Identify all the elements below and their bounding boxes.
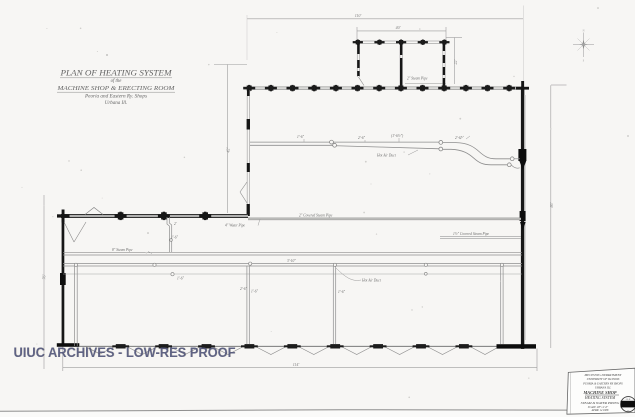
svg-text:APRIL 14 1908: APRIL 14 1908	[591, 409, 609, 412]
svg-text:1'-6″: 1'-6″	[177, 277, 185, 281]
svg-text:Urbana Ill.: Urbana Ill.	[105, 101, 128, 106]
svg-text:42': 42'	[226, 147, 231, 152]
svg-text:PLAN OF HEATING SYSTEM: PLAN OF HEATING SYSTEM	[59, 69, 173, 78]
svg-text:114': 114'	[293, 362, 300, 367]
svg-text:1½″ Covered Steam Pipe: 1½″ Covered Steam Pipe	[453, 232, 489, 236]
svg-text:ALB: ALB	[626, 398, 631, 401]
svg-text:of the: of the	[111, 79, 123, 84]
svg-text:STEAM & WATER PIPING: STEAM & WATER PIPING	[581, 401, 620, 405]
svg-text:1'-6″: 1'-6″	[171, 236, 179, 240]
svg-text:HEATING SYSTEM: HEATING SYSTEM	[584, 396, 616, 400]
svg-text:40': 40'	[396, 25, 401, 30]
svg-text:8″ Steam Pipe: 8″ Steam Pipe	[112, 248, 133, 252]
svg-text:MECH ENG DEPARTMENT: MECH ENG DEPARTMENT	[584, 373, 622, 377]
svg-text:Hot Air Duct: Hot Air Duct	[376, 154, 397, 158]
svg-text:UIUC ARCHIVES - LOW-RES PROOF: UIUC ARCHIVES - LOW-RES PROOF	[14, 345, 236, 360]
svg-text:1'-6″: 1'-6″	[338, 290, 346, 294]
svg-text:2'-6″: 2'-6″	[240, 287, 248, 291]
svg-text:2'-6″: 2'-6″	[358, 136, 366, 140]
svg-text:4″ Water Pipe: 4″ Water Pipe	[225, 223, 246, 227]
svg-text:22': 22'	[453, 59, 458, 64]
svg-text:2″ Covered Steam Pipe: 2″ Covered Steam Pipe	[299, 214, 333, 218]
svg-text:86': 86'	[549, 202, 554, 207]
svg-text:1'-6″: 1'-6″	[297, 135, 305, 139]
svg-text:Peoria and Eastern Ry. Shops: Peoria and Eastern Ry. Shops	[84, 94, 147, 100]
svg-text:Hot Air Duct: Hot Air Duct	[361, 279, 382, 283]
svg-text:2': 2'	[174, 222, 177, 226]
svg-text:3'-10″: 3'-10″	[287, 259, 296, 263]
svg-text:MACHINE SHOP: MACHINE SHOP	[582, 390, 616, 395]
svg-text:76': 76'	[42, 274, 47, 279]
svg-text:MACHINE SHOP & ERECTING ROOM: MACHINE SHOP & ERECTING ROOM	[56, 85, 175, 92]
svg-text:1'-6″: 1'-6″	[251, 290, 259, 294]
svg-text:2″ Steam Pipe: 2″ Steam Pipe	[407, 77, 428, 81]
svg-text:110': 110'	[355, 13, 362, 18]
svg-text:N: N	[583, 30, 585, 33]
svg-text:URBANA ILL: URBANA ILL	[595, 386, 611, 390]
svg-text:(1'-6½″): (1'-6½″)	[391, 134, 404, 138]
